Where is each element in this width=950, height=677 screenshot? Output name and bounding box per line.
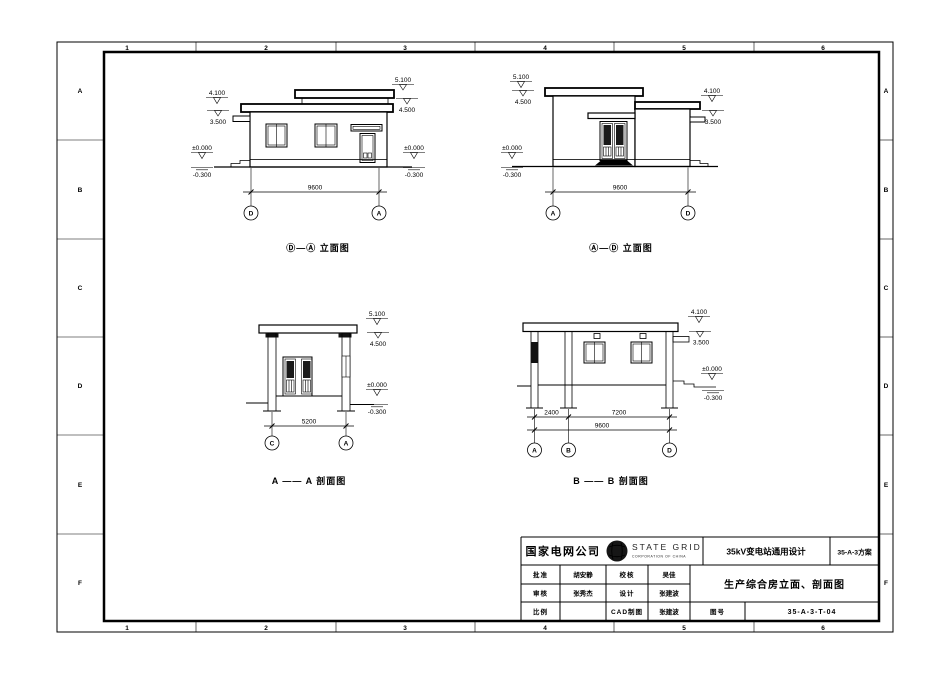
zone-col-label: 2 bbox=[264, 625, 268, 632]
view-caption: Ⓐ—Ⓓ 立面图 bbox=[589, 242, 653, 253]
drawing-number: 35-A-3-T-04 bbox=[788, 609, 837, 616]
svg-text:9600: 9600 bbox=[613, 185, 628, 192]
svg-text:A: A bbox=[532, 448, 537, 455]
state-grid-logo-icon bbox=[607, 541, 628, 562]
zone-row-label: F bbox=[78, 580, 82, 587]
zone-col-label: 2 bbox=[264, 45, 268, 52]
svg-text:4.100: 4.100 bbox=[209, 90, 226, 97]
zone-row-label: A bbox=[884, 88, 889, 95]
field-label-approve: 批准 bbox=[533, 570, 548, 579]
door bbox=[360, 134, 375, 163]
zone-col-label: 6 bbox=[821, 45, 825, 52]
svg-text:7200: 7200 bbox=[612, 410, 627, 417]
svg-text:4.500: 4.500 bbox=[370, 341, 387, 348]
field-value-cad: 张建波 bbox=[659, 607, 679, 616]
zone-row-label: E bbox=[884, 482, 889, 489]
project-title: 35kV变电站通用设计 bbox=[726, 547, 806, 557]
field-value-review: 张秀杰 bbox=[573, 589, 593, 598]
svg-text:A: A bbox=[377, 211, 382, 218]
field-label-cad: CAD制图 bbox=[611, 607, 643, 616]
svg-text:5.100: 5.100 bbox=[369, 311, 386, 318]
zone-row-label: A bbox=[78, 88, 83, 95]
svg-text:±0.000: ±0.000 bbox=[367, 382, 387, 389]
svg-text:3.500: 3.500 bbox=[693, 340, 710, 347]
field-value-check: 吴佳 bbox=[663, 570, 677, 579]
svg-text:4.100: 4.100 bbox=[691, 309, 708, 316]
zone-col-label: 4 bbox=[543, 625, 547, 632]
field-label-drawing-no: 图号 bbox=[710, 607, 725, 616]
svg-text:±0.000: ±0.000 bbox=[702, 366, 722, 373]
svg-text:-0.300: -0.300 bbox=[503, 172, 522, 179]
zone-row-label: B bbox=[78, 187, 83, 194]
svg-text:2400: 2400 bbox=[544, 410, 559, 417]
svg-text:A: A bbox=[344, 441, 349, 448]
window bbox=[266, 124, 287, 147]
field-value-design: 张建波 bbox=[659, 589, 679, 598]
svg-text:3.500: 3.500 bbox=[705, 119, 722, 126]
svg-text:-0.300: -0.300 bbox=[193, 172, 212, 179]
zone-col-label: 5 bbox=[682, 625, 686, 632]
svg-text:4.500: 4.500 bbox=[515, 99, 532, 106]
zone-row-label: D bbox=[884, 383, 889, 390]
field-value-approve: 胡安静 bbox=[573, 570, 593, 579]
field-label-scale: 比例 bbox=[533, 607, 548, 616]
field-label-design: 设计 bbox=[620, 589, 635, 598]
svg-text:D: D bbox=[249, 211, 254, 218]
zone-col-label: 3 bbox=[403, 625, 407, 632]
svg-text:-0.300: -0.300 bbox=[368, 409, 387, 416]
door bbox=[283, 357, 312, 396]
zone-col-label: 1 bbox=[125, 625, 129, 632]
view-caption: B —— B 剖面图 bbox=[573, 475, 649, 486]
svg-text:B: B bbox=[566, 448, 571, 455]
field-label-check: 校核 bbox=[620, 570, 635, 579]
zone-row-label: D bbox=[78, 383, 83, 390]
zone-row-label: F bbox=[884, 580, 888, 587]
company-name: 国家电网公司 bbox=[526, 544, 601, 558]
svg-text:4.500: 4.500 bbox=[399, 107, 416, 114]
zone-row-label: B bbox=[884, 187, 889, 194]
window bbox=[584, 342, 605, 363]
svg-text:D: D bbox=[667, 448, 672, 455]
drawing-title: 生产综合房立面、剖面图 bbox=[724, 578, 845, 591]
louver-vent bbox=[351, 125, 382, 132]
zone-row-label: C bbox=[78, 285, 83, 292]
window bbox=[315, 124, 337, 147]
window bbox=[631, 342, 652, 363]
field-label-review: 审核 bbox=[533, 589, 548, 598]
svg-text:-0.300: -0.300 bbox=[704, 395, 723, 402]
zone-col-label: 3 bbox=[403, 45, 407, 52]
svg-text:4.100: 4.100 bbox=[704, 88, 721, 95]
svg-text:D: D bbox=[686, 211, 691, 218]
svg-text:9600: 9600 bbox=[308, 185, 323, 192]
zone-col-label: 1 bbox=[125, 45, 129, 52]
zone-col-label: 5 bbox=[682, 45, 686, 52]
drawing-sheet: 1 2 3 4 5 6 1 2 3 4 5 6 A B C D E F A B … bbox=[0, 0, 950, 672]
svg-text:C: C bbox=[270, 441, 275, 448]
svg-text:±0.000: ±0.000 bbox=[192, 145, 212, 152]
view-caption: Ⓓ—Ⓐ 立面图 bbox=[286, 242, 350, 253]
svg-text:9600: 9600 bbox=[595, 423, 610, 430]
svg-text:5.100: 5.100 bbox=[395, 77, 412, 84]
svg-text:-0.300: -0.300 bbox=[405, 172, 424, 179]
svg-text:5200: 5200 bbox=[302, 419, 317, 426]
zone-row-label: E bbox=[78, 482, 83, 489]
svg-text:±0.000: ±0.000 bbox=[502, 145, 522, 152]
svg-text:A: A bbox=[551, 211, 556, 218]
zone-col-label: 6 bbox=[821, 625, 825, 632]
scheme-number: 35-A-3方案 bbox=[837, 548, 872, 557]
svg-text:5.100: 5.100 bbox=[513, 74, 530, 81]
svg-text:±0.000: ±0.000 bbox=[404, 145, 424, 152]
cad-sheet-canvas: 1 2 3 4 5 6 1 2 3 4 5 6 A B C D E F A B … bbox=[0, 0, 950, 672]
zone-col-label: 4 bbox=[543, 45, 547, 52]
view-caption: A —— A 剖面图 bbox=[272, 475, 347, 486]
brand-subtitle: CORPORATION OF CHINA bbox=[632, 555, 686, 559]
brand-name: STATE GRID bbox=[632, 542, 702, 552]
zone-row-label: C bbox=[884, 285, 889, 292]
svg-text:3.500: 3.500 bbox=[210, 119, 227, 126]
